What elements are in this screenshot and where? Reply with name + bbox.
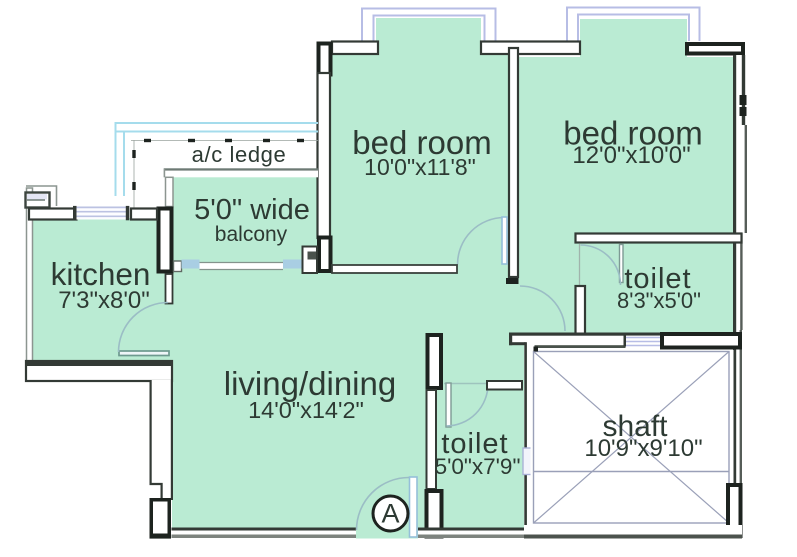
svg-text:10'9"x9'10": 10'9"x9'10" (584, 435, 702, 462)
svg-text:12'0"x10'0": 12'0"x10'0" (572, 142, 690, 169)
svg-text:balcony: balcony (215, 223, 288, 246)
svg-text:a/c ledge: a/c ledge (192, 142, 287, 167)
svg-text:7'3"x8'0": 7'3"x8'0" (58, 287, 150, 314)
svg-text:A: A (381, 499, 399, 529)
svg-text:14'0"x14'2": 14'0"x14'2" (248, 397, 364, 423)
svg-text:5'0"x7'9": 5'0"x7'9" (435, 454, 521, 479)
svg-text:10'0"x11'8": 10'0"x11'8" (364, 154, 476, 180)
svg-text:8'3"x5'0": 8'3"x5'0" (617, 288, 701, 313)
svg-text:5'0" wide: 5'0" wide (194, 194, 310, 226)
